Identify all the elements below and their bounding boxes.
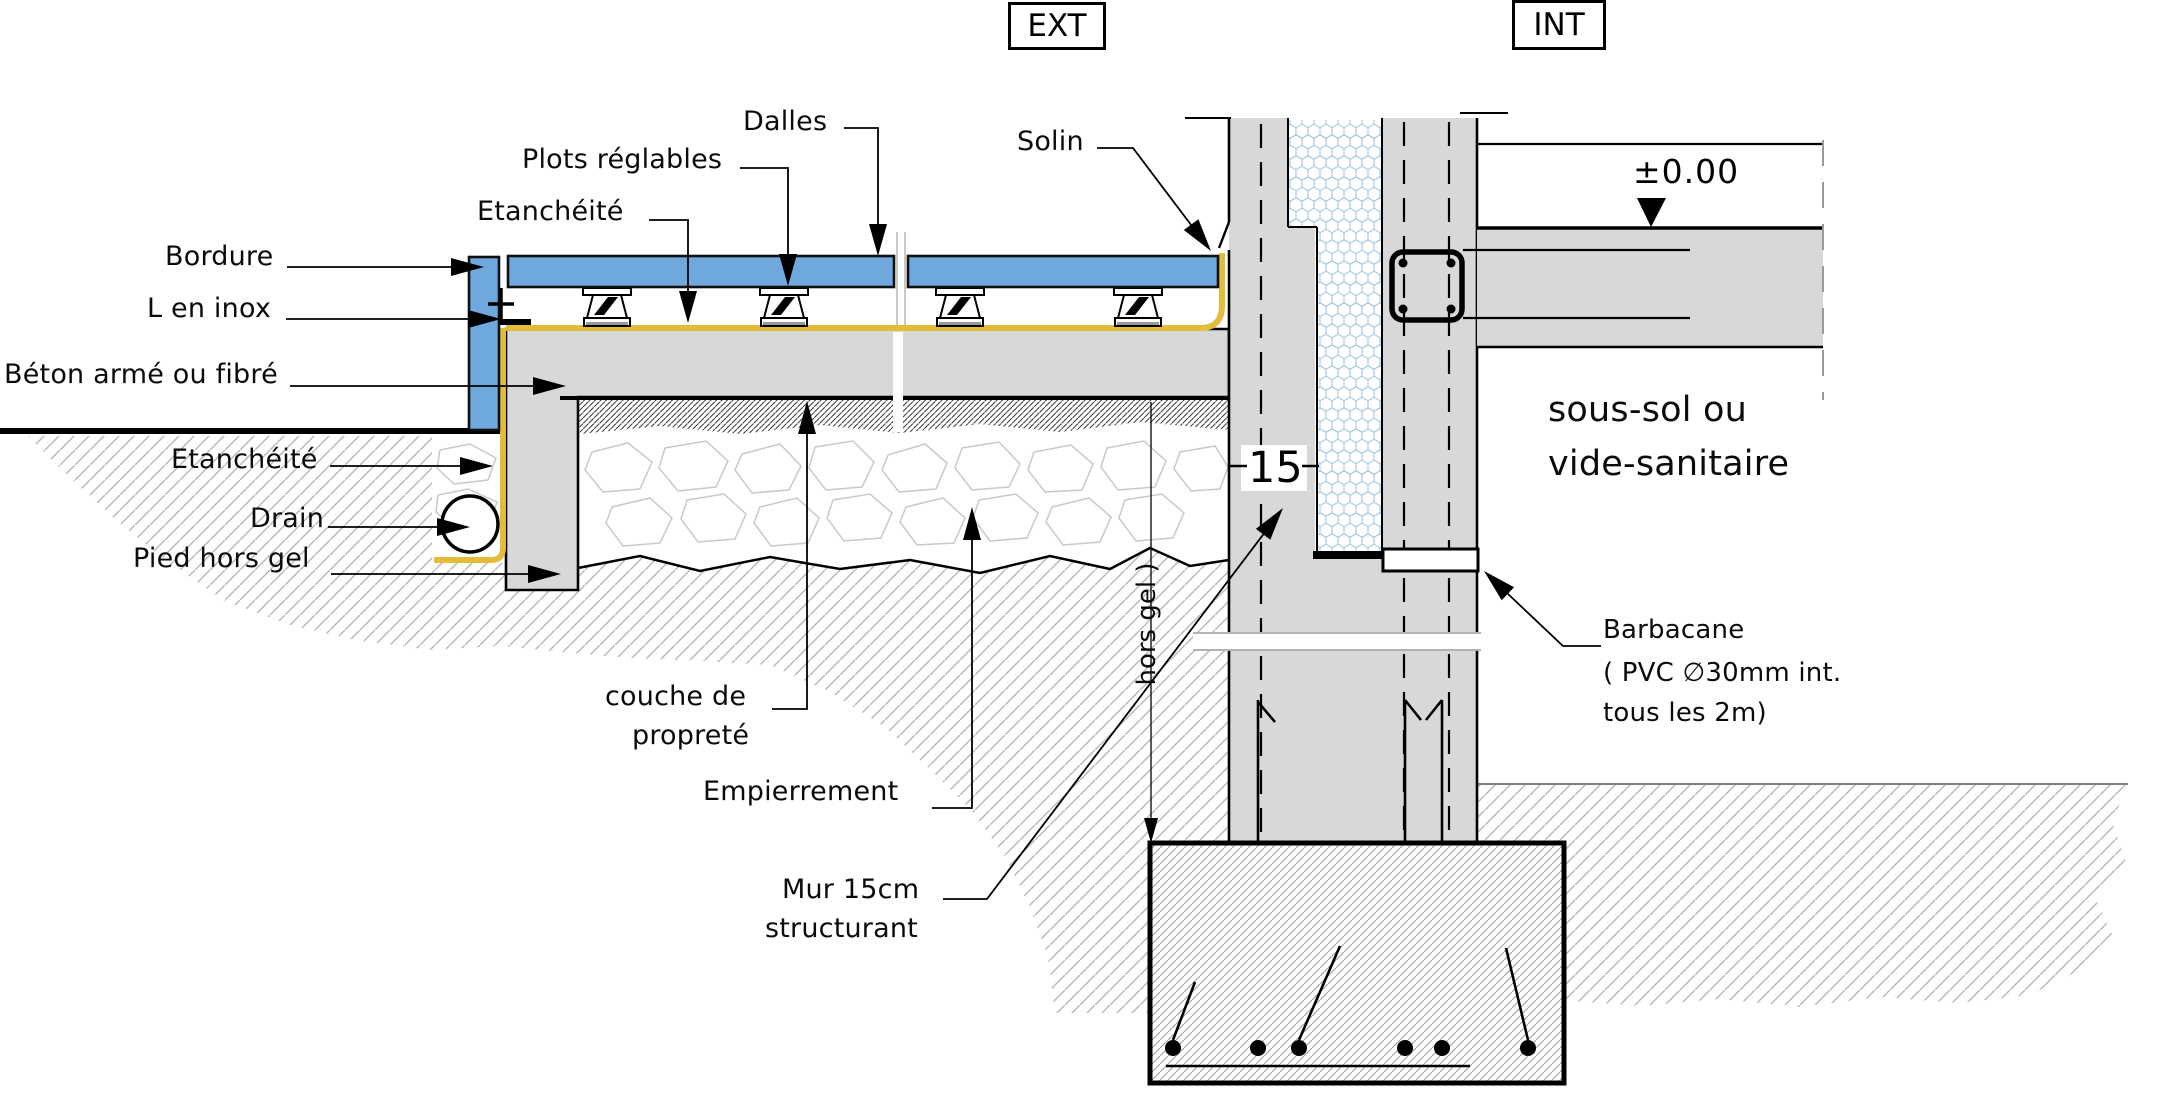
label-barbacane-line1: Barbacane xyxy=(1603,615,1744,645)
zone-int-tag: INT xyxy=(1512,0,1606,50)
label-etancheite-left: Etanchéité xyxy=(171,444,318,475)
label-mur-line2: structurant xyxy=(765,913,918,944)
ground-line xyxy=(0,428,504,434)
terrace-concrete-slab xyxy=(506,329,1229,590)
wall-cut-ticks xyxy=(1185,113,1508,118)
label-sous-sol-line2: vide-sanitaire xyxy=(1548,444,1789,484)
label-sous-sol-line1: sous-sol ou xyxy=(1548,390,1747,430)
label-pied-hors-gel: Pied hors gel xyxy=(133,543,310,574)
label-couche-line2: propreté xyxy=(632,720,749,751)
soil-left-hatch xyxy=(28,436,1229,1013)
label-plots-reglables: Plots réglables xyxy=(522,144,722,175)
label-barbacane-line3: tous les 2m) xyxy=(1603,698,1767,728)
label-dalles: Dalles xyxy=(743,106,827,137)
label-barbacane-line2: ( PVC ∅30mm int. xyxy=(1603,658,1841,688)
level-marker-triangle xyxy=(1637,198,1666,227)
label-wall-width-15: 15 xyxy=(1248,443,1303,493)
paving-slabs xyxy=(508,256,1218,287)
construction-detail-drawing: EXT INT Dalles Plots réglables Etanchéit… xyxy=(0,0,2165,1109)
label-empierrement: Empierrement xyxy=(703,776,898,807)
label-etancheite-top: Etanchéité xyxy=(477,196,624,227)
label-mur-line1: Mur 15cm xyxy=(782,874,919,905)
label-hors-gel: hors gel ) xyxy=(1132,562,1162,685)
soil-right-hatch xyxy=(1478,784,2128,1007)
border-kerb xyxy=(469,257,499,430)
barbacane-pipe xyxy=(1383,549,1478,571)
zone-ext-tag: EXT xyxy=(1008,2,1106,50)
adjustable-pedestals xyxy=(583,288,1162,326)
label-bordure: Bordure xyxy=(165,241,273,272)
label-l-en-inox: L en inox xyxy=(147,293,271,324)
label-level-0: ±0.00 xyxy=(1633,152,1739,191)
foundation-footing xyxy=(1150,843,1564,1083)
label-drain: Drain xyxy=(250,503,324,534)
interior-wall-leaf xyxy=(1383,118,1477,843)
cavity-bottom-closure xyxy=(1313,551,1383,559)
wall-break-band xyxy=(1193,632,1481,651)
drawing-canvas xyxy=(0,0,2165,1109)
label-solin: Solin xyxy=(1017,126,1084,157)
label-beton-arme: Béton armé ou fibré xyxy=(4,359,278,390)
label-couche-line1: couche de xyxy=(605,681,746,712)
